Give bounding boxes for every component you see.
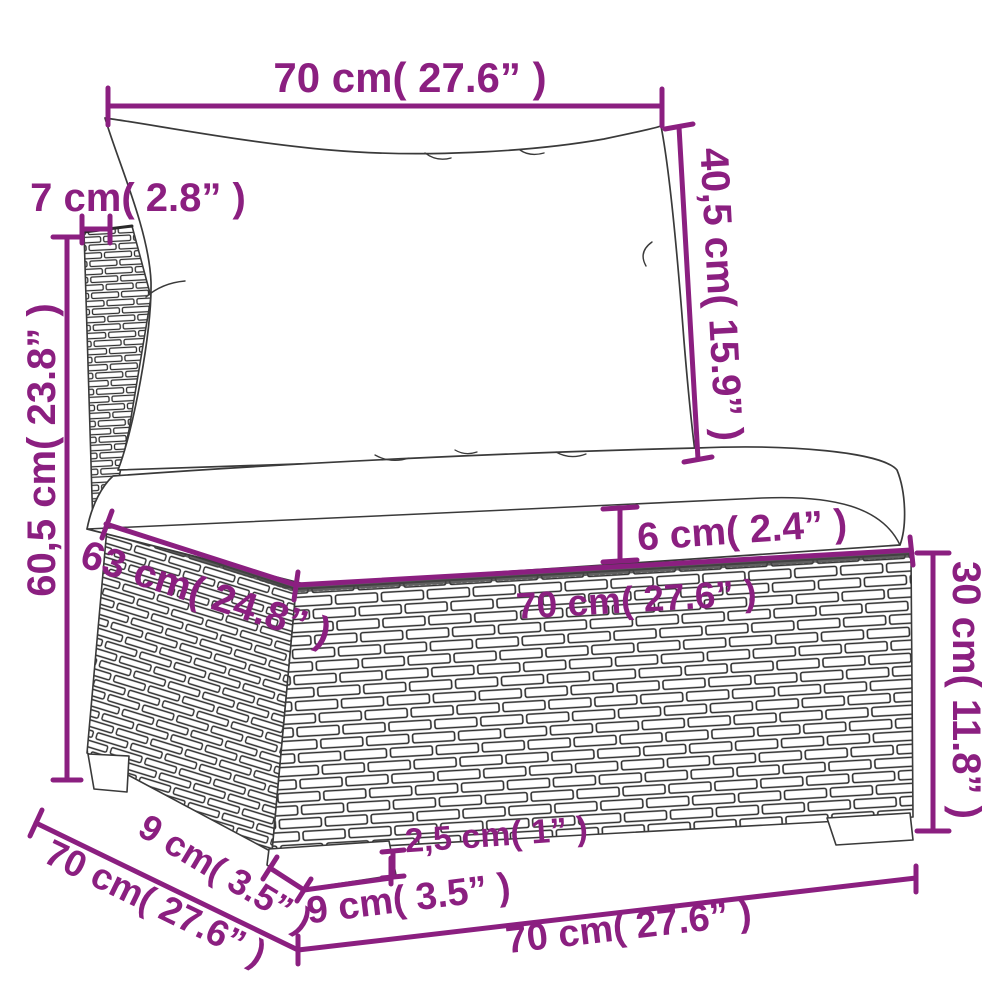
dim-total-height-label: 60,5 cm( 23.8” ) xyxy=(20,303,64,597)
product-dimension-diagram: 70 cm( 27.6” ) 40,5 cm( 15.9” ) 7 cm( 2.… xyxy=(0,0,1000,1000)
dim-cushion-thickness-tick-bottom xyxy=(603,560,637,562)
dim-post-width-label: 7 cm( 2.8” ) xyxy=(30,176,246,220)
foot-front-right xyxy=(827,813,913,845)
sofa-sketch xyxy=(84,118,913,889)
dim-back-cushion-height-label: 40,5 cm( 15.9” ) xyxy=(691,147,750,442)
dim-total-height: 60,5 cm( 23.8” ) xyxy=(20,237,81,780)
dim-back-cushion-height-tick-top xyxy=(665,124,693,129)
back-cushion-sketch xyxy=(105,118,695,470)
foot-back-left xyxy=(88,754,129,792)
diagram-canvas: 70 cm( 27.6” ) 40,5 cm( 15.9” ) 7 cm( 2.… xyxy=(0,0,1000,1000)
dim-base-height: 30 cm( 11.8” ) xyxy=(917,553,988,831)
dim-back-cushion-width: 70 cm( 27.6” ) xyxy=(108,54,662,126)
dim-base-height-label: 30 cm( 11.8” ) xyxy=(944,561,988,819)
dim-foot-height-tick-top xyxy=(382,850,404,852)
dim-total-width-label: 70 cm( 27.6” ) xyxy=(503,892,753,962)
dim-cushion-thickness-tick-top xyxy=(603,507,637,509)
dim-back-cushion-width-label: 70 cm( 27.6” ) xyxy=(273,54,546,101)
dim-base-width-tick-right xyxy=(910,537,913,565)
